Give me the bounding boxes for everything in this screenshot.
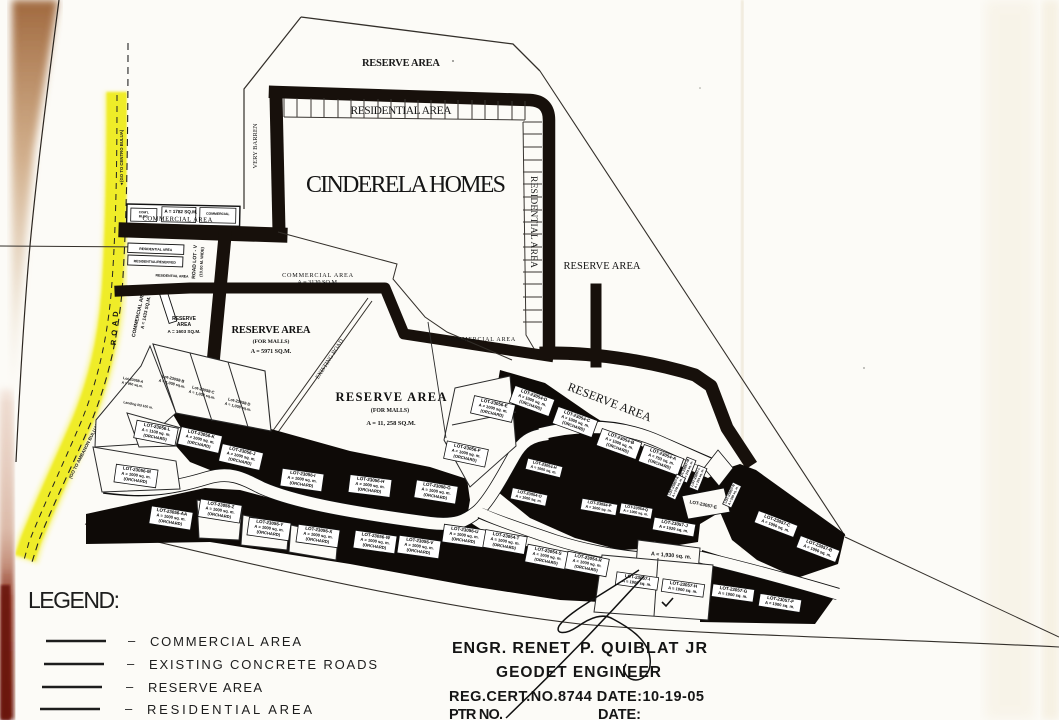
svg-text:–: – [125, 701, 133, 716]
svg-text:(FOR MALLS): (FOR MALLS) [253, 338, 290, 345]
svg-text:GEODET ENGINEER: GEODET ENGINEER [496, 664, 661, 681]
svg-text:–: – [128, 633, 136, 648]
svg-text:RESIDENTIAL AREA: RESIDENTIAL AREA [147, 702, 312, 717]
svg-text:–: – [126, 679, 134, 694]
svg-text:RESERVE AREA: RESERVE AREA [232, 325, 311, 336]
svg-text:A = 1603 SQ.M.: A = 1603 SQ.M. [168, 329, 201, 334]
svg-text:DATE:: DATE: [598, 707, 641, 720]
svg-text:COMMERCIAL AREA: COMMERCIAL AREA [142, 215, 212, 223]
svg-text:COMMERCIAL AREA: COMMERCIAL AREA [282, 272, 354, 279]
svg-text:(FOR MALLS): (FOR MALLS) [371, 407, 409, 414]
svg-text:RESERVE AREA: RESERVE AREA [336, 390, 447, 404]
svg-text:REG.CERT.NO.8744 DATE:10-19-05: REG.CERT.NO.8744 DATE:10-19-05 [449, 689, 704, 705]
svg-text:COMMERCIAL AREA: COMMERCIAL AREA [150, 634, 301, 649]
svg-text:A = 5971 SQ.M.: A = 5971 SQ.M. [251, 349, 292, 355]
svg-text:RESERVE AREA: RESERVE AREA [564, 261, 641, 272]
svg-text:CINDERELA HOMES: CINDERELA HOMES [306, 172, 506, 198]
svg-text:–: – [127, 656, 135, 671]
svg-text:RESIDENTIAL AREA: RESIDENTIAL AREA [351, 105, 453, 117]
svg-text:PTR NO.: PTR NO. [449, 707, 503, 720]
svg-text:LEGEND:: LEGEND: [28, 587, 120, 613]
svg-text:RESIDENTIAL AREA: RESIDENTIAL AREA [528, 176, 538, 268]
svg-text:RESERVE AREA: RESERVE AREA [362, 58, 440, 69]
svg-text:VERY BARREN: VERY BARREN [252, 123, 259, 168]
svg-text:ENGR. RENET: ENGR. RENET [452, 640, 570, 657]
svg-text:A = 1782 SQ.M.: A = 1782 SQ.M. [164, 209, 197, 215]
svg-text:COMMERCIAL AREA: COMMERCIAL AREA [446, 337, 516, 343]
svg-text:A = 11, 258 SQ.M.: A = 11, 258 SQ.M. [366, 420, 416, 427]
svg-text:AREA: AREA [177, 322, 192, 328]
svg-text:RESERVE AREA: RESERVE AREA [148, 680, 262, 695]
svg-text:COMMERCIAL: COMMERCIAL [206, 212, 229, 216]
svg-text:A = 3120 SQ.M.: A = 3120 SQ.M. [297, 279, 339, 286]
svg-text:◄(GO TO CENTRO BULUA): ◄(GO TO CENTRO BULUA) [119, 129, 124, 186]
